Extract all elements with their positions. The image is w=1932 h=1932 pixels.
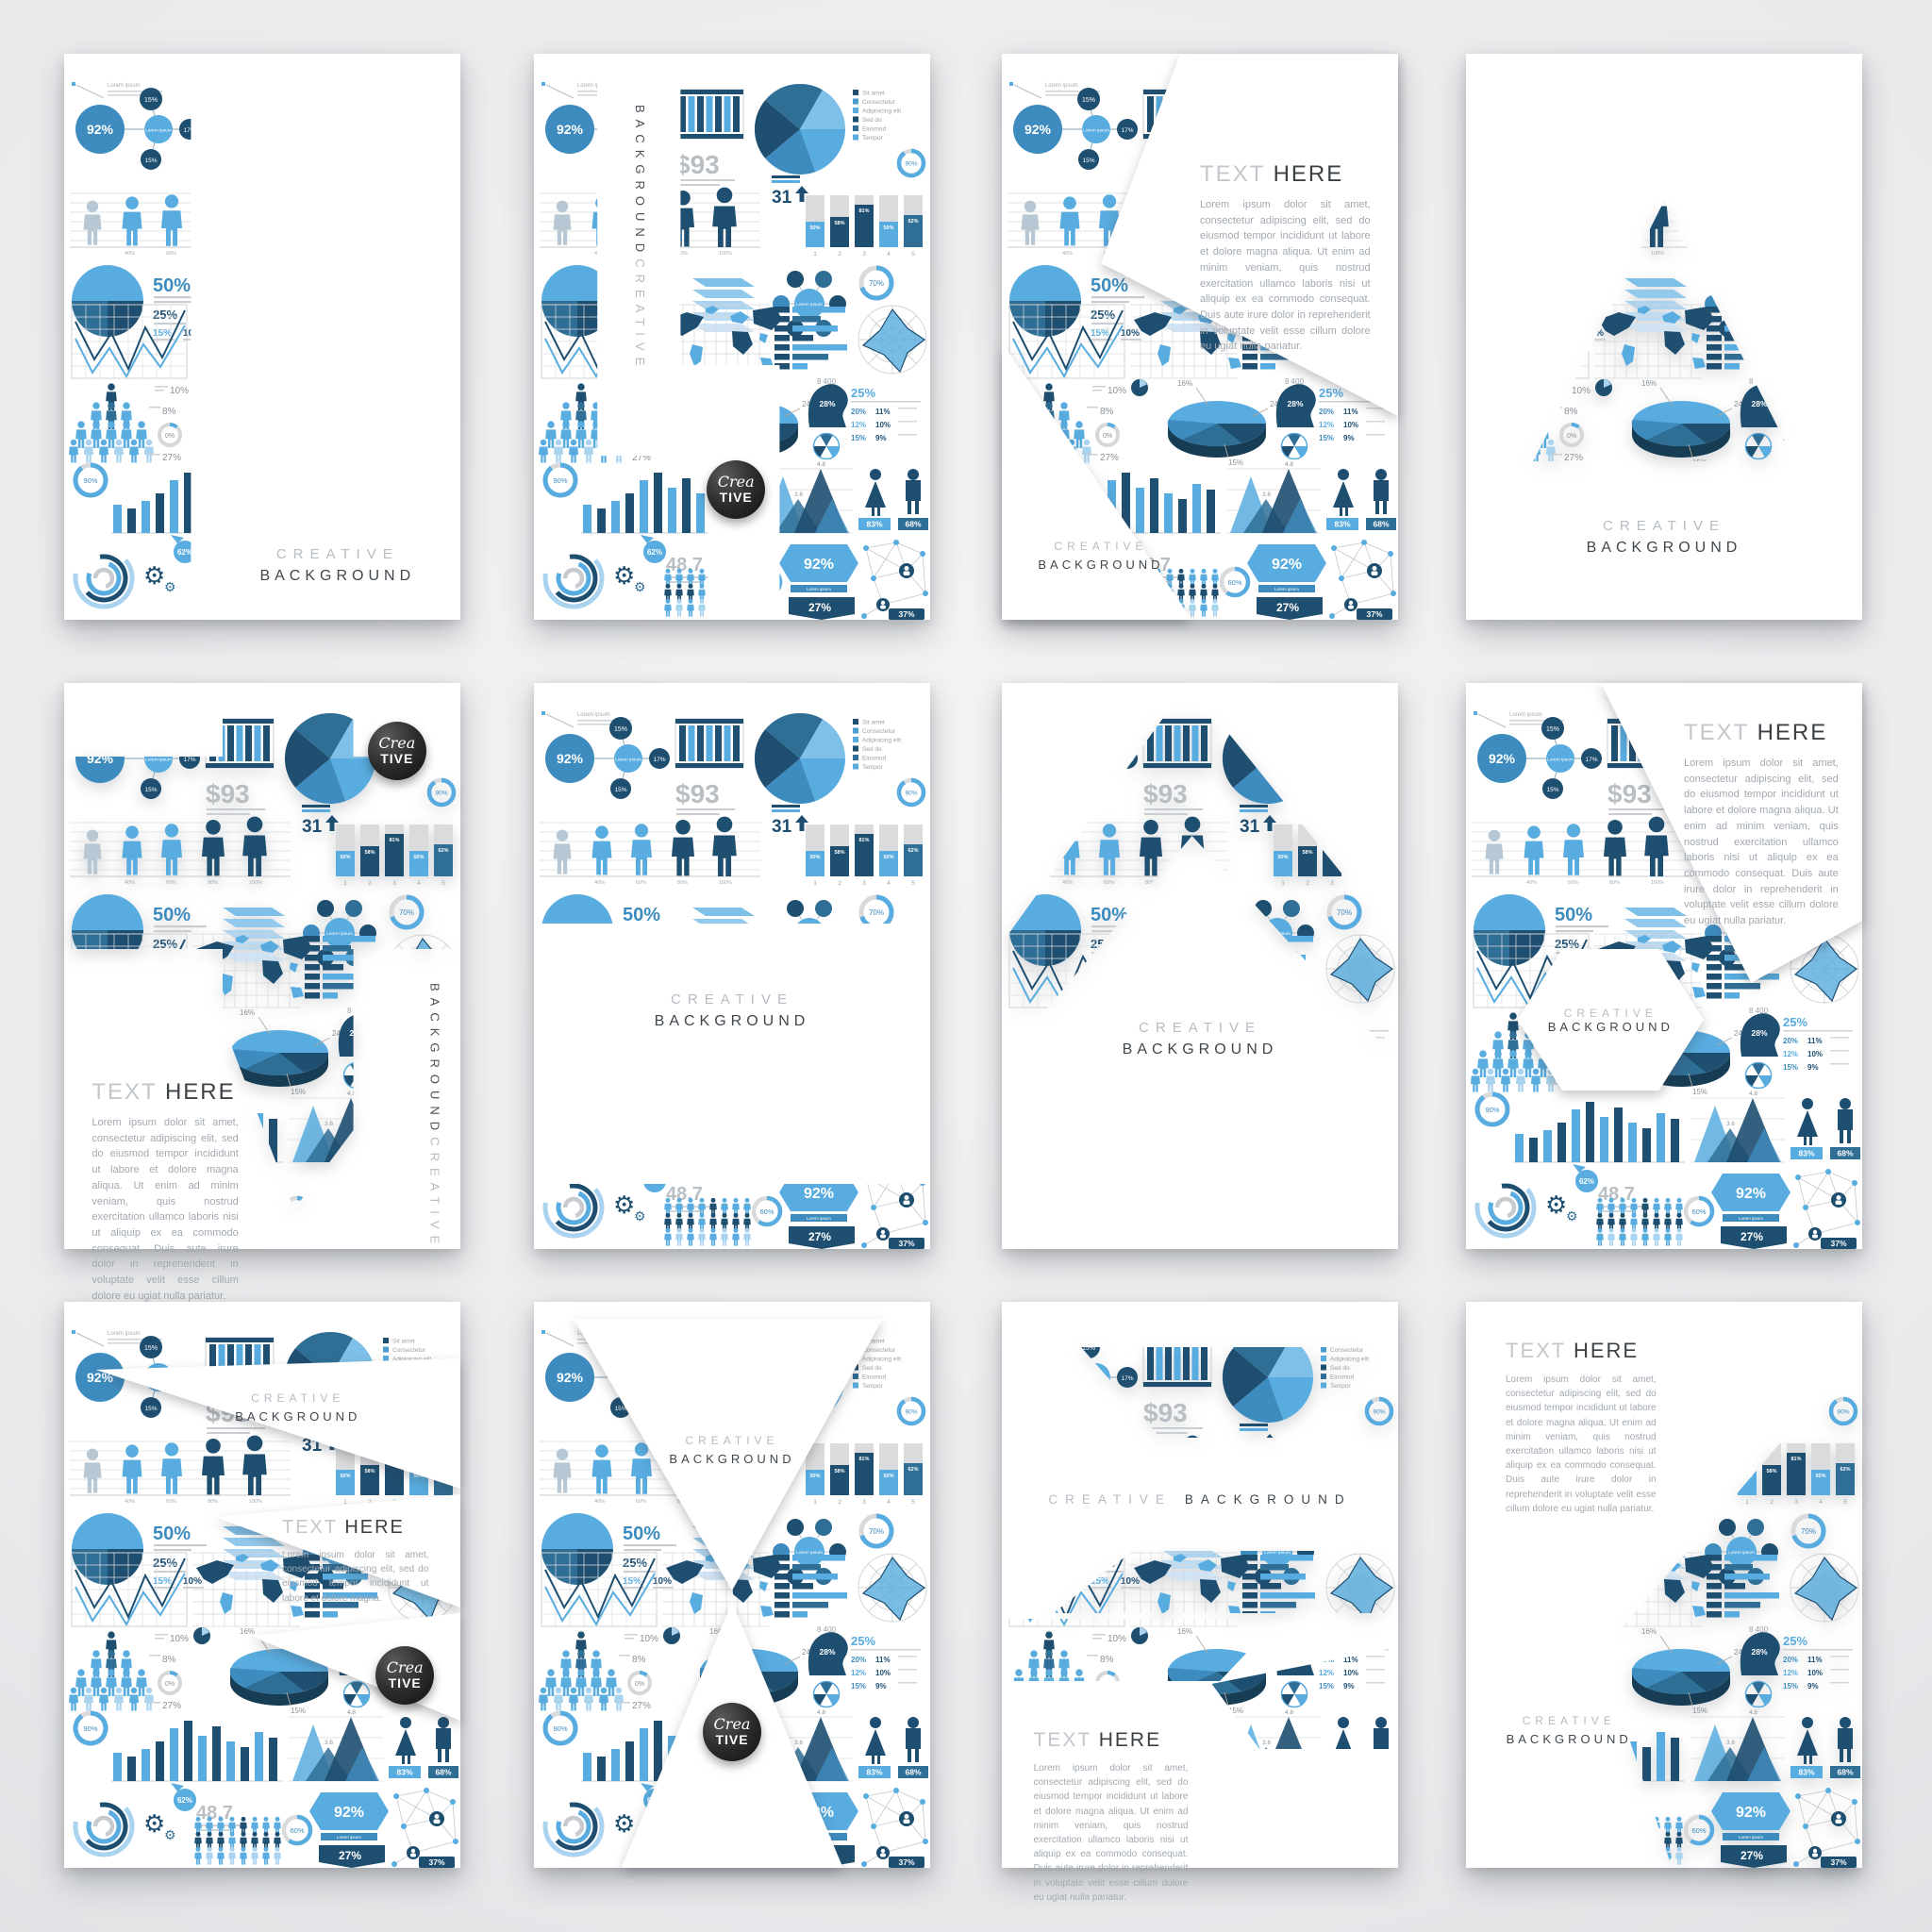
brochure-card-10: CREATIVE BACKGROUND Crea TIVE (534, 1302, 930, 1868)
brochure-card-1: CREATIVE BACKGROUND (64, 54, 460, 620)
template-showcase: CREATIVE BACKGROUND BACKGROUND CREATIVE … (0, 0, 1932, 1932)
brochure-card-8: TEXT HERE Lorem ipsum dolor sit amet, co… (1466, 683, 1862, 1249)
brand-text: CREATIVE BACKGROUND (1101, 1017, 1299, 1062)
creative-badge: Crea TIVE (375, 1646, 434, 1705)
infographic-collage (64, 54, 460, 620)
brochure-card-11: CREATIVEBACKGROUND TEXT HERE Lorem ipsum… (1002, 1302, 1398, 1868)
brand-text: CREATIVE BACKGROUND (633, 1432, 831, 1469)
text-block: TEXT HERE Lorem ipsum dolor sit amet, co… (282, 1517, 428, 1606)
brochure-card-3: TEXT HERE Lorem ipsum dolor sit amet, co… (1002, 54, 1398, 620)
text-block: TEXT HERE Lorem ipsum dolor sit amet, co… (1506, 1339, 1657, 1516)
brand-text: CREATIVE BACKGROUND (1018, 538, 1184, 575)
brochure-card-4: CREATIVE BACKGROUND (1466, 54, 1862, 620)
text-block: TEXT HERE Lorem ipsum dolor sit amet, co… (92, 1079, 238, 1305)
creative-badge: Crea TIVE (703, 1703, 761, 1761)
brand-text-vertical: BACKGROUND CREATIVE (627, 105, 652, 372)
brochure-card-6: CREATIVE BACKGROUND (534, 683, 930, 1249)
brand-text: CREATIVEBACKGROUND (1034, 1491, 1367, 1508)
brochure-card-12: TEXT HERE Lorem ipsum dolor sit amet, co… (1466, 1302, 1862, 1868)
brochure-card-5: Crea TIVE TEXT HERE Lorem ipsum dolor si… (64, 683, 460, 1249)
brochure-card-2: BACKGROUND CREATIVE Crea TIVE (534, 54, 930, 620)
text-block: TEXT HERE Lorem ipsum dolor sit amet, co… (1684, 720, 1839, 929)
infographic-collage (1002, 683, 1398, 1249)
creative-badge: Crea TIVE (368, 722, 426, 780)
text-block: TEXT HERE Lorem ipsum dolor sit amet, co… (1200, 161, 1371, 355)
brand-text: CREATIVE BACKGROUND (1486, 1712, 1652, 1749)
brochure-card-9: CREATIVE BACKGROUND TEXT HERE Lorem ipsu… (64, 1302, 460, 1868)
brand-text: CREATIVE BACKGROUND (255, 543, 421, 589)
infographic-collage (534, 683, 930, 1249)
brand-text: CREATIVE BACKGROUND (633, 989, 831, 1034)
infographic-collage (534, 1302, 930, 1868)
brochure-card-7: CREATIVE BACKGROUND (1002, 683, 1398, 1249)
creative-badge: Crea TIVE (707, 460, 765, 519)
brand-text: CREATIVE BACKGROUND (215, 1390, 381, 1426)
text-block: TEXT HERE Lorem ipsum dolor sit amet, co… (1034, 1729, 1189, 1905)
brand-text-vertical: BACKGROUND CREATIVE (422, 983, 446, 1250)
brand-text: CREATIVE BACKGROUND (1565, 515, 1763, 560)
